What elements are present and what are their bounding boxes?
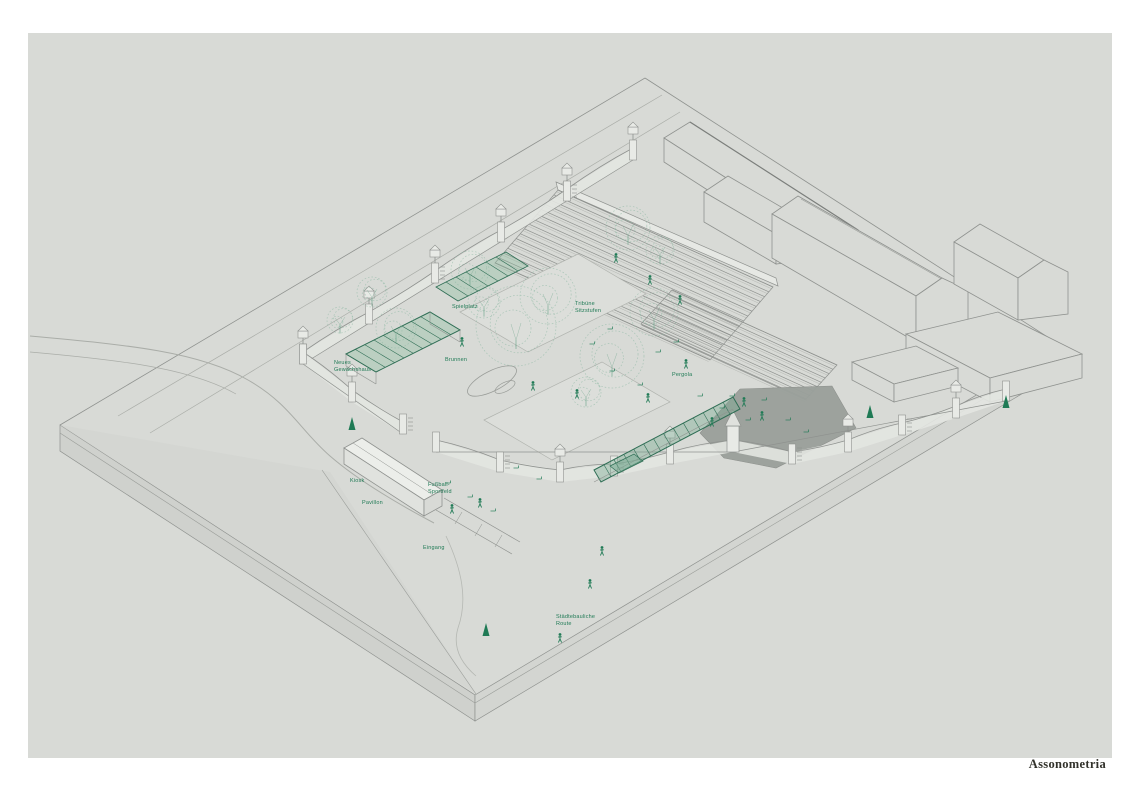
drawing-sheet: NeuesGewächshausBrunnenSpielplatzTribüne…: [0, 0, 1140, 805]
axonometric-drawing: [0, 0, 1140, 805]
drawing-caption: Assonometria: [1029, 757, 1106, 772]
